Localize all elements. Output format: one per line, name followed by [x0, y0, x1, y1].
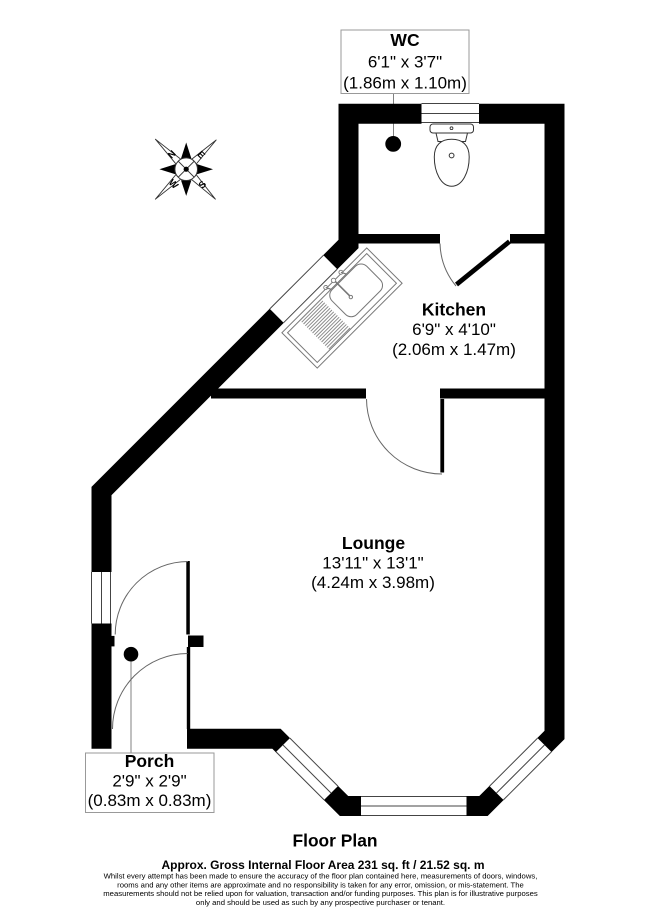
svg-text:Kitchen: Kitchen	[422, 300, 486, 320]
svg-text:Approx. Gross Internal Floor A: Approx. Gross Internal Floor Area 231 sq…	[162, 858, 485, 872]
svg-text:Whilst every attempt has been: Whilst every attempt has been made to en…	[104, 871, 538, 880]
svg-text:only and should be used as suc: only and should be used as such by any p…	[196, 898, 445, 907]
svg-text:(1.86m x 1.10m): (1.86m x 1.10m)	[343, 74, 467, 93]
svg-text:Lounge: Lounge	[342, 533, 405, 553]
svg-text:Floor Plan: Floor Plan	[292, 831, 377, 851]
svg-text:measurements should not be rel: measurements should not be relied upon f…	[103, 889, 538, 898]
svg-text:2'9" x 2'9": 2'9" x 2'9"	[112, 772, 186, 791]
svg-text:rooms and any other items are: rooms and any other items are approximat…	[117, 880, 524, 889]
svg-text:WC: WC	[390, 30, 420, 50]
svg-text:(2.06m x 1.47m): (2.06m x 1.47m)	[392, 340, 516, 359]
svg-text:13'11" x 13'1": 13'11" x 13'1"	[322, 553, 423, 572]
svg-text:Porch: Porch	[125, 751, 175, 771]
svg-text:6'9" x 4'10": 6'9" x 4'10"	[412, 320, 496, 339]
svg-text:(0.83m x 0.83m): (0.83m x 0.83m)	[88, 791, 212, 810]
svg-text:(4.24m x 3.98m): (4.24m x 3.98m)	[311, 573, 435, 592]
svg-text:6'1" x 3'7": 6'1" x 3'7"	[368, 53, 442, 72]
